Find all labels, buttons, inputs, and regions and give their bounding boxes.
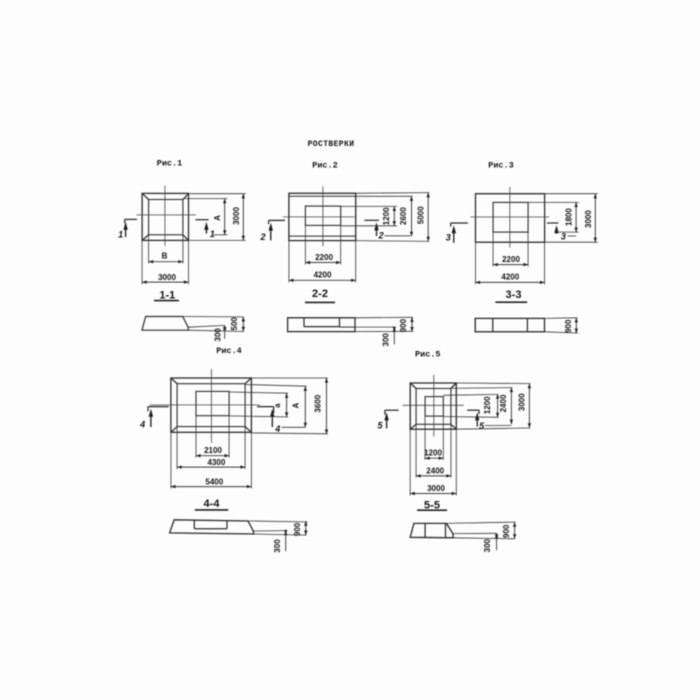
svg-text:4200: 4200 xyxy=(314,270,332,279)
svg-text:2400: 2400 xyxy=(426,467,444,476)
svg-text:3000: 3000 xyxy=(427,484,445,493)
svg-text:а: а xyxy=(273,403,282,408)
svg-text:1200: 1200 xyxy=(483,396,492,414)
svg-text:4: 4 xyxy=(139,419,145,429)
svg-text:А: А xyxy=(292,402,301,408)
svg-text:2: 2 xyxy=(259,232,265,242)
svg-text:1800: 1800 xyxy=(564,208,573,226)
svg-text:2400: 2400 xyxy=(499,394,508,412)
svg-text:4300: 4300 xyxy=(208,458,226,467)
svg-text:1: 1 xyxy=(210,229,215,239)
svg-text:900: 900 xyxy=(502,524,511,538)
svg-text:2200: 2200 xyxy=(315,253,333,262)
svg-text:В: В xyxy=(162,252,168,261)
svg-text:Рис.1: Рис.1 xyxy=(157,159,183,169)
svg-text:1-1: 1-1 xyxy=(159,289,175,301)
svg-text:3: 3 xyxy=(561,231,566,241)
svg-text:Рис.2: Рис.2 xyxy=(312,161,338,171)
svg-text:300: 300 xyxy=(483,538,492,552)
svg-text:3000: 3000 xyxy=(584,210,593,228)
svg-text:900: 900 xyxy=(564,319,573,333)
svg-text:Рис.3: Рис.3 xyxy=(488,161,514,171)
svg-text:Рис.4: Рис.4 xyxy=(216,346,242,356)
svg-text:4: 4 xyxy=(274,424,280,434)
svg-text:2600: 2600 xyxy=(399,207,408,225)
svg-text:300: 300 xyxy=(382,333,391,347)
svg-text:3000: 3000 xyxy=(232,207,241,225)
svg-text:300: 300 xyxy=(273,539,282,553)
svg-text:3600: 3600 xyxy=(314,394,323,412)
svg-text:5400: 5400 xyxy=(205,477,223,486)
svg-text:4-4: 4-4 xyxy=(204,498,221,510)
svg-text:1200: 1200 xyxy=(424,449,442,458)
svg-text:А: А xyxy=(213,215,222,221)
svg-text:Рис.5: Рис.5 xyxy=(415,350,441,360)
svg-text:3-3: 3-3 xyxy=(506,289,522,301)
svg-text:5000: 5000 xyxy=(416,206,425,224)
svg-text:300: 300 xyxy=(214,328,223,342)
svg-text:2100: 2100 xyxy=(204,446,222,455)
svg-text:2-2: 2-2 xyxy=(312,288,328,300)
svg-text:900: 900 xyxy=(399,318,408,332)
svg-text:1: 1 xyxy=(118,230,123,240)
svg-text:3: 3 xyxy=(446,233,451,243)
svg-text:2200: 2200 xyxy=(502,255,520,264)
svg-text:900: 900 xyxy=(293,522,302,536)
svg-text:3000: 3000 xyxy=(158,273,176,282)
svg-text:2: 2 xyxy=(378,230,384,240)
svg-text:РОСТВЕРКИ: РОСТВЕРКИ xyxy=(308,140,355,149)
svg-text:4200: 4200 xyxy=(501,272,519,281)
svg-text:500: 500 xyxy=(230,317,239,331)
svg-text:3000: 3000 xyxy=(518,393,527,411)
svg-text:1200: 1200 xyxy=(382,207,391,225)
